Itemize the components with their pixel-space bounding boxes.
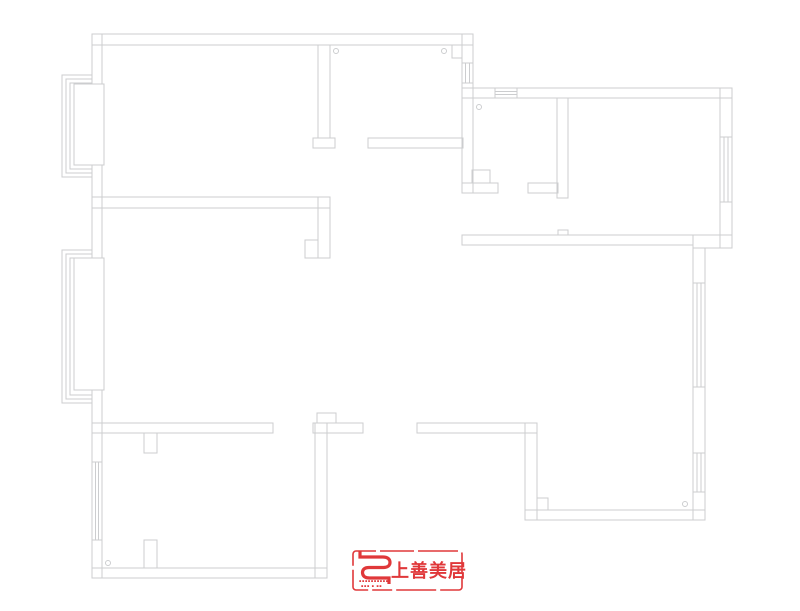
wall — [537, 498, 548, 510]
window-icon — [92, 462, 102, 540]
wall — [305, 240, 318, 258]
wall — [557, 98, 568, 198]
pipe-circle-icon — [477, 105, 482, 110]
window-icon — [720, 137, 732, 202]
wall — [472, 170, 490, 183]
pipe-circle-icon — [334, 49, 339, 54]
logo-stamp: 上善美居 ▪▪▪▪▪▪▪▪▪▪ ▪▪▪ ▪ ▪▪ — [353, 551, 467, 590]
wall — [92, 423, 273, 433]
wall — [417, 423, 537, 433]
bay-window-pane — [74, 84, 104, 165]
floorplan-page: 上善美居 ▪▪▪▪▪▪▪▪▪▪ ▪▪▪ ▪ ▪▪ — [0, 0, 800, 611]
wall — [313, 138, 335, 148]
wall — [318, 45, 330, 138]
wall — [318, 197, 330, 258]
wall — [462, 183, 498, 193]
wall — [462, 235, 693, 245]
wall — [452, 45, 462, 58]
wall — [525, 510, 705, 520]
floorplan-svg: 上善美居 ▪▪▪▪▪▪▪▪▪▪ ▪▪▪ ▪ ▪▪ — [0, 0, 800, 611]
wall — [528, 183, 558, 193]
wall — [525, 423, 537, 520]
wall — [693, 235, 732, 248]
window-icon — [693, 453, 705, 492]
wall — [92, 34, 473, 45]
wall — [462, 34, 473, 193]
logo-subtext-row1: ▪▪▪▪▪▪▪▪▪▪ — [359, 579, 389, 583]
bay-window-pane — [74, 258, 104, 390]
wall — [317, 413, 336, 423]
wall — [315, 423, 327, 578]
wall — [144, 433, 157, 453]
window-icon — [693, 283, 705, 387]
window-icon — [462, 63, 473, 83]
plan-geometry — [62, 34, 732, 578]
wall — [92, 197, 330, 208]
window-icon — [495, 88, 517, 98]
wall — [144, 540, 157, 568]
pipe-circle-icon — [683, 502, 688, 507]
logo-text: 上善美居 — [391, 560, 467, 581]
pipe-circle-icon — [106, 561, 111, 566]
wall — [313, 423, 363, 433]
wall — [92, 568, 327, 578]
wall — [368, 138, 463, 148]
pipe-circle-icon — [442, 49, 447, 54]
wall — [558, 230, 568, 235]
logo-subtext-row2: ▪▪▪ ▪ ▪▪ — [361, 584, 382, 588]
